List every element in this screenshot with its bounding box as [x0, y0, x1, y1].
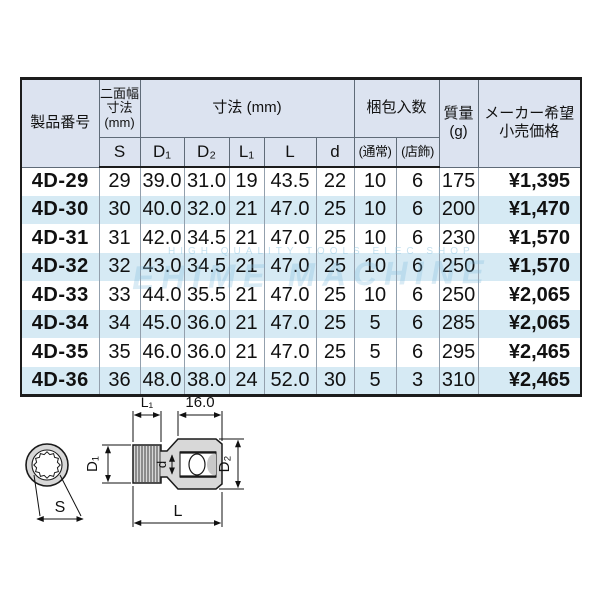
value-cell: 175 — [439, 167, 478, 196]
col-header-s: S — [99, 138, 140, 168]
page: { "watermark": { "small_text": "HIGH QUA… — [0, 0, 600, 600]
table-row: 4D-363648.038.02452.03053310¥2,465 — [21, 367, 581, 396]
product-no-cell: 4D-36 — [21, 367, 99, 396]
mass-line: 質量 — [440, 105, 478, 124]
value-cell: 6 — [396, 310, 439, 339]
value-cell: 35 — [99, 338, 140, 367]
label-d: d — [154, 461, 169, 468]
value-cell: 19 — [229, 167, 264, 196]
price-line: メーカー希望 — [479, 105, 581, 124]
label-l: L — [174, 503, 183, 520]
col-header-d2: D₂ — [184, 138, 229, 168]
value-cell: 25 — [316, 310, 354, 339]
price-cell: ¥2,065 — [478, 281, 581, 310]
value-cell: 25 — [316, 253, 354, 282]
price-cell: ¥1,570 — [478, 224, 581, 253]
value-cell: 32 — [99, 253, 140, 282]
product-no-cell: 4D-29 — [21, 167, 99, 196]
col-header-product-no: 製品番号 — [21, 79, 99, 168]
value-cell: 47.0 — [264, 196, 316, 225]
value-cell: 21 — [229, 253, 264, 282]
col-header-dimensions: 寸法 (mm) — [140, 79, 354, 138]
value-cell: 31 — [99, 224, 140, 253]
value-cell: 29 — [99, 167, 140, 196]
value-cell: 5 — [354, 367, 396, 396]
value-cell: 21 — [229, 196, 264, 225]
value-cell: 48.0 — [140, 367, 184, 396]
value-cell: 35.5 — [184, 281, 229, 310]
spec-table: 製品番号 二面幅 寸法 (mm) 寸法 (mm) 梱包入数 質量 (g) メーカ… — [20, 77, 582, 397]
price-cell: ¥2,465 — [478, 367, 581, 396]
col-header-d: d — [316, 138, 354, 168]
product-no-cell: 4D-34 — [21, 310, 99, 339]
value-cell: 47.0 — [264, 310, 316, 339]
value-cell: 5 — [354, 310, 396, 339]
socket-technical-drawing: S d D₁ D₂ — [20, 395, 280, 580]
label-d1: D₁ — [84, 456, 101, 472]
value-cell: 34.5 — [184, 253, 229, 282]
value-cell: 5 — [354, 338, 396, 367]
value-cell: 6 — [396, 338, 439, 367]
value-cell: 230 — [439, 224, 478, 253]
value-cell: 10 — [354, 167, 396, 196]
label-d2: D₂ — [216, 455, 233, 472]
value-cell: 24 — [229, 367, 264, 396]
value-cell: 47.0 — [264, 253, 316, 282]
price-cell: ¥1,470 — [478, 196, 581, 225]
col-header-normal-pack: (通常) — [354, 138, 396, 168]
product-no-cell: 4D-30 — [21, 196, 99, 225]
dimension-d1 — [102, 445, 131, 483]
value-cell: 295 — [439, 338, 478, 367]
value-cell: 31.0 — [184, 167, 229, 196]
value-cell: 36.0 — [184, 310, 229, 339]
col-header-display-pack: (店飾) — [396, 138, 439, 168]
table-row: 4D-333344.035.52147.025106250¥2,065 — [21, 281, 581, 310]
table-row: 4D-292939.031.01943.522106175¥1,395 — [21, 167, 581, 196]
value-cell: 6 — [396, 224, 439, 253]
price-line: 小売価格 — [479, 123, 581, 142]
value-cell: 39.0 — [140, 167, 184, 196]
value-cell: 36.0 — [184, 338, 229, 367]
label-l1: L₁ — [141, 395, 154, 410]
value-cell: 42.0 — [140, 224, 184, 253]
value-cell: 310 — [439, 367, 478, 396]
price-cell: ¥2,065 — [478, 310, 581, 339]
value-cell: 6 — [396, 281, 439, 310]
col-header-two-face-width: 二面幅 寸法 (mm) — [99, 79, 140, 138]
col-header-retail-price: メーカー希望 小売価格 — [478, 79, 581, 168]
value-cell: 46.0 — [140, 338, 184, 367]
value-cell: 10 — [354, 224, 396, 253]
drive-window — [180, 452, 221, 477]
value-cell: 10 — [354, 196, 396, 225]
mass-line: (g) — [440, 123, 478, 142]
value-cell: 25 — [316, 224, 354, 253]
col-header-l1: L₁ — [229, 138, 264, 168]
value-cell: 25 — [316, 281, 354, 310]
value-cell: 285 — [439, 310, 478, 339]
value-cell: 200 — [439, 196, 478, 225]
value-cell: 40.0 — [140, 196, 184, 225]
col-header-mass: 質量 (g) — [439, 79, 478, 168]
price-cell: ¥1,395 — [478, 167, 581, 196]
value-cell: 34 — [99, 310, 140, 339]
value-cell: 34.5 — [184, 224, 229, 253]
value-cell: 3 — [396, 367, 439, 396]
two-face-width-line: 二面幅 — [100, 87, 140, 102]
value-cell: 30 — [99, 196, 140, 225]
value-cell: 45.0 — [140, 310, 184, 339]
value-cell: 52.0 — [264, 367, 316, 396]
price-cell: ¥2,465 — [478, 338, 581, 367]
dimension-l1 — [133, 411, 161, 442]
product-no-cell: 4D-32 — [21, 253, 99, 282]
value-cell: 47.0 — [264, 281, 316, 310]
value-cell: 6 — [396, 196, 439, 225]
col-header-packing-qty: 梱包入数 — [354, 79, 439, 138]
value-cell: 21 — [229, 224, 264, 253]
two-face-width-line: (mm) — [100, 116, 140, 131]
spec-table-body: 4D-292939.031.01943.522106175¥1,3954D-30… — [21, 167, 581, 395]
dimension-drive-width — [178, 411, 222, 441]
socket-front-view: S — [26, 444, 83, 519]
label-s: S — [55, 499, 66, 516]
table-row: 4D-323243.034.52147.025106250¥1,570 — [21, 253, 581, 282]
product-no-cell: 4D-33 — [21, 281, 99, 310]
value-cell: 10 — [354, 281, 396, 310]
value-cell: 21 — [229, 310, 264, 339]
two-face-width-line: 寸法 — [100, 101, 140, 116]
value-cell: 25 — [316, 338, 354, 367]
socket-side-view: d D₁ D₂ L₁ 16.0 — [84, 395, 244, 527]
value-cell: 10 — [354, 253, 396, 282]
col-header-l: L — [264, 138, 316, 168]
value-cell: 33 — [99, 281, 140, 310]
value-cell: 43.5 — [264, 167, 316, 196]
product-no-cell: 4D-31 — [21, 224, 99, 253]
value-cell: 43.0 — [140, 253, 184, 282]
value-cell: 250 — [439, 281, 478, 310]
value-cell: 25 — [316, 196, 354, 225]
price-cell: ¥1,570 — [478, 253, 581, 282]
value-cell: 250 — [439, 253, 478, 282]
header-row-1: 製品番号 二面幅 寸法 (mm) 寸法 (mm) 梱包入数 質量 (g) メーカ… — [21, 79, 581, 138]
label-drive-width: 16.0 — [185, 395, 214, 411]
value-cell: 47.0 — [264, 224, 316, 253]
value-cell: 6 — [396, 167, 439, 196]
value-cell: 21 — [229, 281, 264, 310]
product-no-cell: 4D-35 — [21, 338, 99, 367]
value-cell: 44.0 — [140, 281, 184, 310]
value-cell: 38.0 — [184, 367, 229, 396]
value-cell: 22 — [316, 167, 354, 196]
table-row: 4D-313142.034.52147.025106230¥1,570 — [21, 224, 581, 253]
value-cell: 6 — [396, 253, 439, 282]
pin-hole — [189, 454, 205, 475]
value-cell: 21 — [229, 338, 264, 367]
table-row: 4D-343445.036.02147.02556285¥2,065 — [21, 310, 581, 339]
value-cell: 32.0 — [184, 196, 229, 225]
value-cell: 36 — [99, 367, 140, 396]
col-header-d1: D₁ — [140, 138, 184, 168]
value-cell: 47.0 — [264, 338, 316, 367]
value-cell: 30 — [316, 367, 354, 396]
table-row: 4D-303040.032.02147.025106200¥1,470 — [21, 196, 581, 225]
table-row: 4D-353546.036.02147.02556295¥2,465 — [21, 338, 581, 367]
